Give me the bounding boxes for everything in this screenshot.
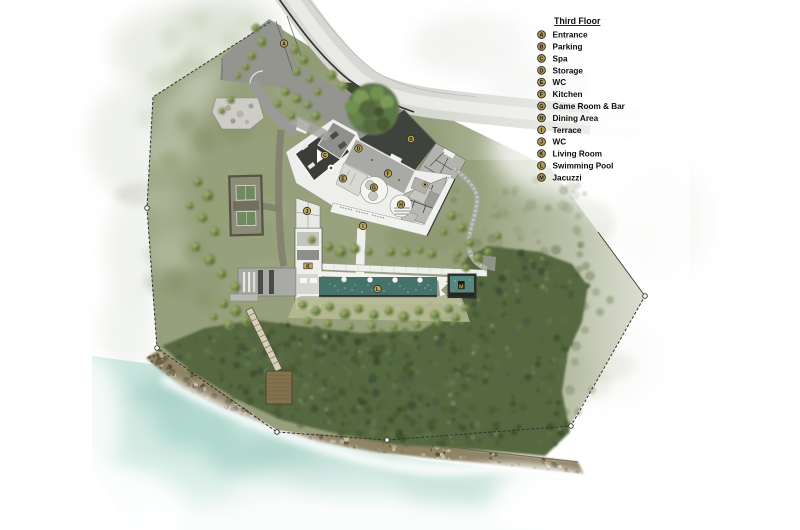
svg-text:E: E xyxy=(540,80,544,86)
svg-text:Entrance: Entrance xyxy=(553,31,588,40)
svg-text:H: H xyxy=(540,116,544,122)
svg-text:WC: WC xyxy=(553,78,567,87)
svg-text:Swimming Pool: Swimming Pool xyxy=(553,162,614,171)
svg-text:K: K xyxy=(540,152,544,158)
svg-text:L: L xyxy=(376,287,379,293)
svg-text:C: C xyxy=(540,56,544,62)
svg-text:B: B xyxy=(540,45,544,51)
svg-text:J: J xyxy=(540,140,543,146)
svg-text:C: C xyxy=(323,153,327,159)
svg-text:J: J xyxy=(306,209,309,215)
svg-text:Terrace: Terrace xyxy=(553,126,582,135)
svg-text:B: B xyxy=(409,137,413,143)
svg-text:Game Room & Bar: Game Room & Bar xyxy=(553,102,626,111)
svg-text:K: K xyxy=(306,264,310,270)
svg-text:D: D xyxy=(357,146,361,152)
svg-text:Third Floor: Third Floor xyxy=(554,16,601,26)
svg-text:Storage: Storage xyxy=(553,66,584,75)
svg-text:Spa: Spa xyxy=(553,54,568,63)
svg-text:Jacuzzi: Jacuzzi xyxy=(553,173,582,182)
svg-text:M: M xyxy=(459,284,464,290)
svg-text:A: A xyxy=(282,41,286,47)
svg-text:Parking: Parking xyxy=(553,43,583,52)
svg-text:Dining Area: Dining Area xyxy=(553,114,599,123)
svg-text:M: M xyxy=(539,175,544,181)
svg-text:Kitchen: Kitchen xyxy=(553,90,583,99)
svg-text:G: G xyxy=(372,185,376,191)
svg-text:G: G xyxy=(539,104,543,110)
svg-text:F: F xyxy=(386,171,389,177)
svg-text:D: D xyxy=(540,68,544,74)
svg-text:WC: WC xyxy=(553,138,567,147)
svg-text:Living Room: Living Room xyxy=(553,150,603,159)
svg-text:H: H xyxy=(399,202,403,208)
svg-text:A: A xyxy=(540,33,544,39)
